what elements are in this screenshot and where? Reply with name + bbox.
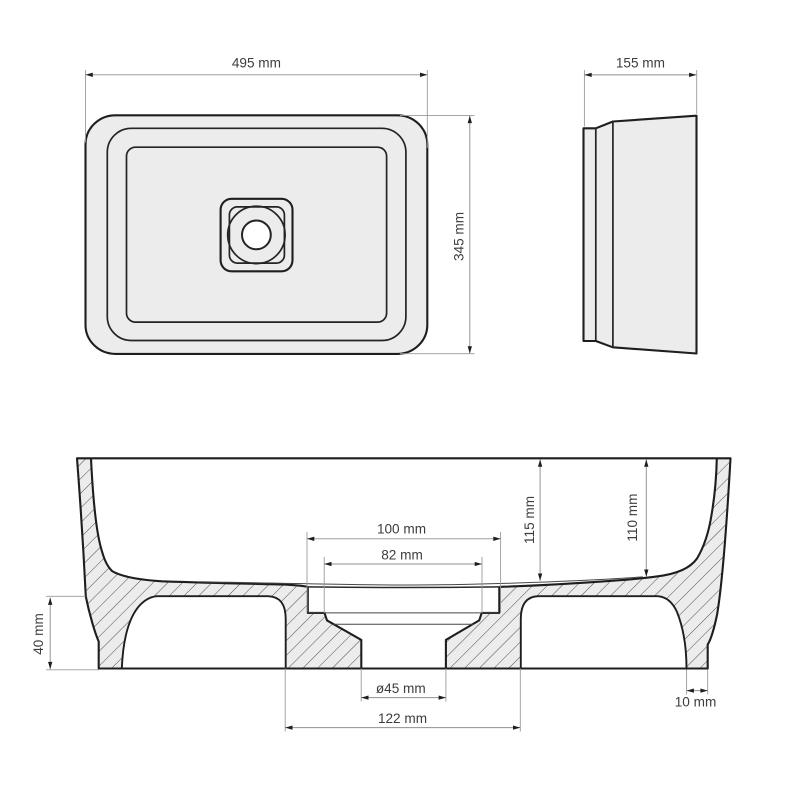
svg-text:495 mm: 495 mm [232,55,281,70]
svg-text:155 mm: 155 mm [616,55,665,70]
svg-text:100 mm: 100 mm [377,522,426,537]
svg-text:110 mm: 110 mm [625,494,640,542]
svg-text:122 mm: 122 mm [378,711,427,726]
svg-text:345 mm: 345 mm [451,212,466,261]
svg-text:ø45 mm: ø45 mm [376,681,426,696]
svg-text:10 mm: 10 mm [675,695,717,710]
svg-text:82 mm: 82 mm [381,548,423,563]
svg-text:115 mm: 115 mm [522,496,537,544]
svg-text:40 mm: 40 mm [31,613,46,655]
